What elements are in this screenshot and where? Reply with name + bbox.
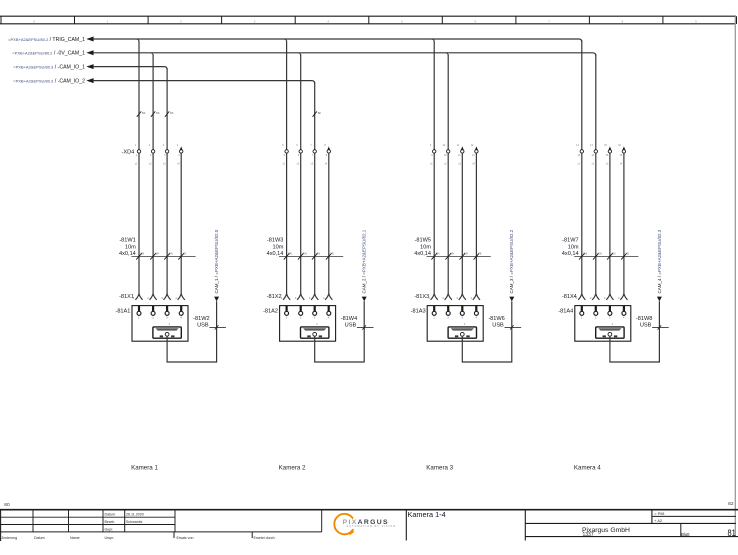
svg-text:= P08: = P08 <box>654 512 664 516</box>
svg-text:6: 6 <box>296 144 298 147</box>
svg-text:WH: WH <box>450 251 454 255</box>
svg-text:Gepr.: Gepr. <box>105 527 114 531</box>
svg-text:1: 1 <box>136 154 138 157</box>
svg-text:Kamera 4: Kamera 4 <box>574 464 601 471</box>
svg-text:3: 3 <box>609 316 611 320</box>
svg-text:Name: Name <box>70 536 80 540</box>
svg-text:x3: x3 <box>163 162 166 165</box>
svg-text:-81W2: -81W2 <box>193 316 209 322</box>
svg-text:1: 1 <box>464 322 466 326</box>
svg-text:x1: x1 <box>135 162 138 165</box>
svg-text:BN: BN <box>288 251 292 255</box>
svg-text:-81W1: -81W1 <box>119 238 135 244</box>
svg-text:CAM_3 / =PXB+A2&EPSU/82.2: CAM_3 / =PXB+A2&EPSU/82.2 <box>509 229 514 293</box>
svg-text:12: 12 <box>472 154 475 157</box>
svg-text:4: 4 <box>623 316 625 320</box>
svg-text:81: 81 <box>727 527 736 538</box>
svg-text:4: 4 <box>180 316 182 320</box>
svg-text:Bearb.: Bearb. <box>105 520 116 524</box>
svg-text:1: 1 <box>433 316 435 320</box>
svg-text:9: 9 <box>430 144 432 147</box>
svg-text:GN: GN <box>316 251 320 255</box>
svg-text:-81A3: -81A3 <box>411 309 426 315</box>
svg-text:3: 3 <box>166 316 168 320</box>
svg-text:3: 3 <box>163 144 165 147</box>
svg-text:9: 9 <box>695 20 697 24</box>
svg-text:x3: x3 <box>606 162 609 165</box>
svg-text:BK: BK <box>170 111 174 115</box>
svg-text:Änderung: Änderung <box>2 536 18 540</box>
svg-text:4: 4 <box>475 316 477 320</box>
svg-text:3: 3 <box>164 154 166 157</box>
svg-text:2: 2 <box>180 20 182 24</box>
svg-text:x4: x4 <box>177 162 180 165</box>
svg-text:-81W5: -81W5 <box>415 238 431 244</box>
svg-text:GN: GN <box>464 251 468 255</box>
svg-text:Kamera 3: Kamera 3 <box>426 464 453 471</box>
svg-text:1: 1 <box>107 20 109 24</box>
svg-text:x1: x1 <box>578 162 581 165</box>
svg-text:4x0,14: 4x0,14 <box>562 251 579 257</box>
svg-text:4: 4 <box>175 296 177 300</box>
svg-text:1: 1 <box>286 316 288 320</box>
svg-text:14: 14 <box>591 154 594 157</box>
svg-text:4: 4 <box>323 296 325 300</box>
svg-text:x2: x2 <box>149 162 152 165</box>
svg-text:-81W6: -81W6 <box>488 316 504 322</box>
svg-text:3: 3 <box>314 316 316 320</box>
svg-text:BN: BN <box>141 251 145 255</box>
svg-text:BK: BK <box>156 111 160 115</box>
svg-text:1: 1 <box>316 322 318 326</box>
svg-text:5: 5 <box>282 144 284 147</box>
svg-text:11: 11 <box>458 154 461 157</box>
svg-text:15: 15 <box>604 144 607 147</box>
svg-text:WH: WH <box>597 251 601 255</box>
svg-text:4: 4 <box>178 154 180 157</box>
svg-text:5: 5 <box>401 20 403 24</box>
svg-text:-81X1: -81X1 <box>119 294 134 300</box>
svg-text:WH: WH <box>155 251 159 255</box>
svg-text:USB: USB <box>345 323 357 329</box>
svg-text:x2: x2 <box>444 162 447 165</box>
svg-text:1: 1 <box>138 316 140 320</box>
svg-text:+ A2: + A2 <box>654 519 662 523</box>
svg-text:-81W3: -81W3 <box>267 238 283 244</box>
svg-text:WH: WH <box>302 251 306 255</box>
svg-text:-81A4: -81A4 <box>558 309 573 315</box>
svg-text:2: 2 <box>442 296 444 300</box>
svg-text:80: 80 <box>4 502 10 508</box>
svg-text:-81A1: -81A1 <box>115 309 130 315</box>
svg-text:x3: x3 <box>311 162 314 165</box>
svg-text:=PXB+A2&EPSU/80.2 / -0V_CAM_1: =PXB+A2&EPSU/80.2 / -0V_CAM_1 <box>12 51 85 57</box>
svg-text:2: 2 <box>152 316 154 320</box>
svg-text:-81A2: -81A2 <box>263 309 278 315</box>
svg-text:10: 10 <box>444 154 447 157</box>
svg-text:BN: BN <box>436 251 440 255</box>
svg-text:Kamera 2: Kamera 2 <box>279 464 306 471</box>
svg-text:USB: USB <box>492 323 504 329</box>
svg-text:10m: 10m <box>125 244 136 250</box>
svg-text:Blatt: Blatt <box>681 532 690 537</box>
svg-text:15: 15 <box>606 154 609 157</box>
svg-text:3: 3 <box>309 296 311 300</box>
svg-text:USB: USB <box>197 323 209 329</box>
svg-text:4: 4 <box>471 296 473 300</box>
svg-text:-81W8: -81W8 <box>636 316 652 322</box>
svg-text:-81X4: -81X4 <box>562 294 577 300</box>
svg-text:-81X2: -81X2 <box>267 294 282 300</box>
svg-text:YE: YE <box>183 251 187 255</box>
svg-text:16: 16 <box>618 144 621 147</box>
svg-text:CAM_1 / =PXB+A2&EPSU/82.0: CAM_1 / =PXB+A2&EPSU/82.0 <box>214 229 219 293</box>
svg-text:1: 1 <box>135 144 137 147</box>
svg-text:=PXB+A2&EPSU/80.3 / -CAM_IO_2: =PXB+A2&EPSU/80.3 / -CAM_IO_2 <box>13 79 85 85</box>
svg-text:8: 8 <box>622 20 624 24</box>
svg-text:BN: BN <box>583 251 587 255</box>
svg-text:AUTOMATION BY VISION: AUTOMATION BY VISION <box>346 524 396 528</box>
svg-text:4x0,14: 4x0,14 <box>119 251 136 257</box>
svg-text:10m: 10m <box>420 244 431 250</box>
svg-text:=PXB+A2&EPSU/80.3 / -CAM_IO_1: =PXB+A2&EPSU/80.3 / -CAM_IO_1 <box>13 65 85 71</box>
svg-text:4: 4 <box>177 144 179 147</box>
svg-text:1: 1 <box>611 322 613 326</box>
svg-text:Kamera 1-4: Kamera 1-4 <box>408 510 446 519</box>
svg-text:13: 13 <box>576 144 579 147</box>
svg-text:7: 7 <box>312 154 314 157</box>
svg-text:USB: USB <box>640 323 652 329</box>
svg-text:YE: YE <box>626 251 630 255</box>
svg-text:10m: 10m <box>568 244 579 250</box>
svg-text:x1: x1 <box>282 162 285 165</box>
svg-text:6: 6 <box>474 20 476 24</box>
svg-text:7: 7 <box>548 20 550 24</box>
svg-text:YE: YE <box>478 251 482 255</box>
svg-text:GN: GN <box>612 251 616 255</box>
svg-text:10: 10 <box>443 144 446 147</box>
svg-text:YE: YE <box>330 251 334 255</box>
svg-text:-81X3: -81X3 <box>414 294 429 300</box>
svg-text:3: 3 <box>604 296 606 300</box>
svg-text:12: 12 <box>471 144 474 147</box>
svg-text:0: 0 <box>33 20 35 24</box>
svg-text:4: 4 <box>327 20 329 24</box>
svg-text:x4: x4 <box>325 162 328 165</box>
svg-text:82: 82 <box>728 501 734 507</box>
svg-text:-81W7: -81W7 <box>562 238 578 244</box>
svg-text:10m: 10m <box>273 244 284 250</box>
svg-text:26.11.2020: 26.11.2020 <box>126 513 144 517</box>
svg-text:9: 9 <box>431 154 433 157</box>
svg-text:x2: x2 <box>592 162 595 165</box>
svg-text:CAM_4 / =PXB+A2&EPSU/82.3: CAM_4 / =PXB+A2&EPSU/82.3 <box>657 229 662 293</box>
svg-text:4x0,14: 4x0,14 <box>414 251 431 257</box>
svg-text:2: 2 <box>150 154 152 157</box>
svg-text:3: 3 <box>161 296 163 300</box>
svg-text:1: 1 <box>169 322 171 326</box>
svg-text:7: 7 <box>310 144 312 147</box>
svg-text:2: 2 <box>149 144 151 147</box>
svg-text:x2: x2 <box>297 162 300 165</box>
svg-text:8: 8 <box>324 144 326 147</box>
svg-text:Datum: Datum <box>105 513 116 517</box>
svg-text:2: 2 <box>300 316 302 320</box>
svg-text:Ersatz von: Ersatz von <box>177 536 194 540</box>
svg-text:4: 4 <box>618 296 620 300</box>
svg-text:14: 14 <box>590 144 593 147</box>
svg-text:CAM_2 / =PXB+A2&EPSU/82.1: CAM_2 / =PXB+A2&EPSU/82.1 <box>362 229 367 293</box>
svg-text:3: 3 <box>461 316 463 320</box>
svg-text:BK: BK <box>318 111 322 115</box>
svg-text:x1: x1 <box>430 162 433 165</box>
svg-text:2: 2 <box>147 296 149 300</box>
svg-text:2: 2 <box>595 316 597 320</box>
svg-text:-81W4: -81W4 <box>341 316 357 322</box>
svg-text:x4: x4 <box>472 162 475 165</box>
svg-text:1: 1 <box>581 316 583 320</box>
svg-text:GN: GN <box>169 251 173 255</box>
svg-text:-XD4: -XD4 <box>122 149 135 155</box>
svg-text:4x0,14: 4x0,14 <box>267 251 284 257</box>
svg-text:2: 2 <box>295 296 297 300</box>
svg-text:3: 3 <box>456 296 458 300</box>
svg-text:Datum: Datum <box>34 536 45 540</box>
svg-text:Kamera 1: Kamera 1 <box>131 464 158 471</box>
svg-text:Urspr.: Urspr. <box>105 536 115 540</box>
svg-text:BK: BK <box>142 111 146 115</box>
svg-text:1337: 1337 <box>583 532 594 538</box>
svg-text:8: 8 <box>326 154 328 157</box>
svg-text:x4: x4 <box>620 162 623 165</box>
svg-text:13: 13 <box>577 154 580 157</box>
svg-text:=PXB+A2&EPSU/80.2 / TRIG_CAM_1: =PXB+A2&EPSU/80.2 / TRIG_CAM_1 <box>8 37 85 43</box>
svg-text:x3: x3 <box>458 162 461 165</box>
svg-text:2: 2 <box>447 316 449 320</box>
svg-text:Ersetzt durch: Ersetzt durch <box>254 536 275 540</box>
svg-text:6: 6 <box>298 154 300 157</box>
svg-text:2: 2 <box>590 296 592 300</box>
svg-text:11: 11 <box>457 144 460 147</box>
svg-text:Schwanitz: Schwanitz <box>126 520 143 524</box>
svg-text:3: 3 <box>254 20 256 24</box>
svg-text:4: 4 <box>328 316 330 320</box>
svg-text:5: 5 <box>284 154 286 157</box>
svg-text:16: 16 <box>620 154 623 157</box>
